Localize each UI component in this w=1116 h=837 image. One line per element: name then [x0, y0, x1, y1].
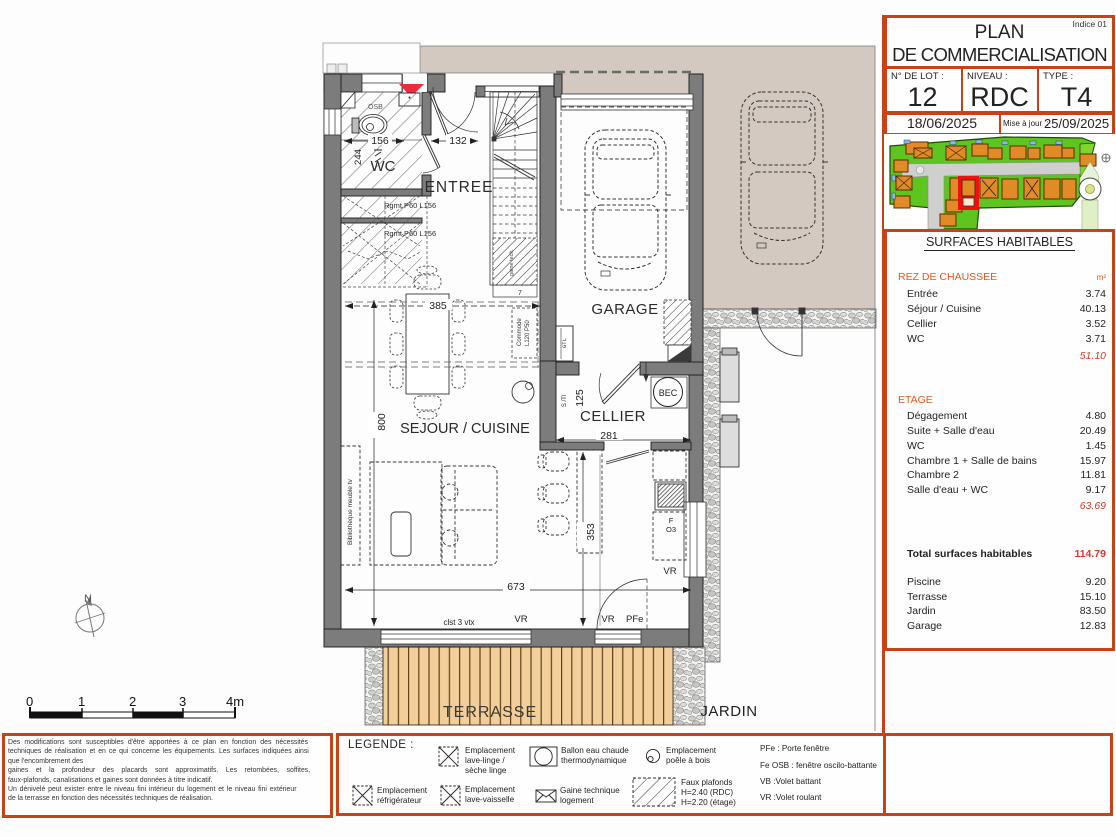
svg-text:PFe: PFe [626, 614, 643, 625]
svg-text:Commode: Commode [517, 318, 523, 346]
svg-text:O3: O3 [666, 525, 676, 534]
svg-text:thermodynamique: thermodynamique [561, 756, 627, 765]
svg-text:lave-linge /: lave-linge / [465, 756, 505, 765]
svg-text:Bibliothèque meuble tv: Bibliothèque meuble tv [347, 478, 354, 545]
svg-text:125: 125 [574, 389, 586, 407]
svg-text:Fe OSB : fenêtre oscilo-battan: Fe OSB : fenêtre oscilo-battante [760, 761, 877, 770]
svg-text:3: 3 [179, 694, 186, 709]
svg-text:réfrigérateur: réfrigérateur [377, 796, 422, 805]
svg-text:673: 673 [507, 581, 525, 593]
svg-text:F: F [669, 516, 674, 525]
svg-text:gaine tech.: gaine tech. [509, 249, 515, 276]
svg-text:sèche linge: sèche linge [465, 766, 507, 775]
svg-text:GTL: GTL [561, 338, 568, 348]
svg-text:L120 P50: L120 P50 [525, 320, 531, 346]
svg-text:Emplacement: Emplacement [666, 746, 717, 755]
svg-text:clst 3 vtx: clst 3 vtx [443, 618, 474, 627]
svg-text:VB :Volet battant: VB :Volet battant [760, 777, 822, 786]
svg-text:VR: VR [601, 614, 614, 625]
svg-text:Emplacement: Emplacement [377, 786, 428, 795]
svg-text:132: 132 [449, 135, 467, 147]
svg-text:S /Tl: S /Tl [562, 395, 568, 407]
svg-text:VR: VR [663, 566, 676, 577]
svg-text:N: N [84, 593, 92, 605]
svg-text:385: 385 [429, 300, 447, 312]
svg-text:800: 800 [376, 413, 388, 431]
svg-text:156: 156 [371, 135, 389, 147]
svg-text:BEC: BEC [659, 388, 678, 398]
svg-text:4m: 4m [226, 694, 244, 709]
svg-text:Faux plafonds: Faux plafonds [681, 778, 732, 787]
svg-text:1: 1 [78, 694, 85, 709]
svg-text:281: 281 [600, 430, 618, 442]
svg-text:353: 353 [585, 523, 597, 541]
svg-text:logement: logement [560, 796, 594, 805]
svg-text:WC: WC [371, 158, 396, 175]
svg-text:Emplacement: Emplacement [465, 746, 516, 755]
svg-text:CELLIER: CELLIER [580, 408, 646, 425]
svg-text:Rgmt P60 L156: Rgmt P60 L156 [384, 229, 436, 238]
svg-text:SEJOUR / CUISINE: SEJOUR / CUISINE [400, 421, 530, 437]
svg-text:7: 7 [518, 290, 522, 297]
svg-text:GARAGE: GARAGE [591, 301, 658, 318]
svg-text:VR: VR [514, 614, 527, 625]
svg-text:PFe : Porte fenêtre: PFe : Porte fenêtre [760, 744, 830, 753]
svg-text:JARDIN: JARDIN [700, 703, 757, 720]
svg-text:H=2.40 (RDC): H=2.40 (RDC) [681, 788, 733, 797]
svg-text:ENTREE: ENTREE [425, 179, 494, 196]
svg-text:244: 244 [353, 149, 364, 165]
svg-text:H=2.20 (étage): H=2.20 (étage) [681, 798, 736, 807]
svg-text:0: 0 [26, 694, 33, 709]
svg-text:TERRASSE: TERRASSE [443, 704, 537, 721]
svg-text:VR :Volet roulant: VR :Volet roulant [760, 793, 822, 802]
svg-text:OSB: OSB [368, 104, 383, 111]
svg-text:poêle à bois: poêle à bois [666, 756, 710, 765]
svg-text:Ballon eau chaude: Ballon eau chaude [561, 746, 629, 755]
svg-text:2: 2 [129, 694, 136, 709]
svg-text:Gaine technique: Gaine technique [560, 786, 620, 795]
